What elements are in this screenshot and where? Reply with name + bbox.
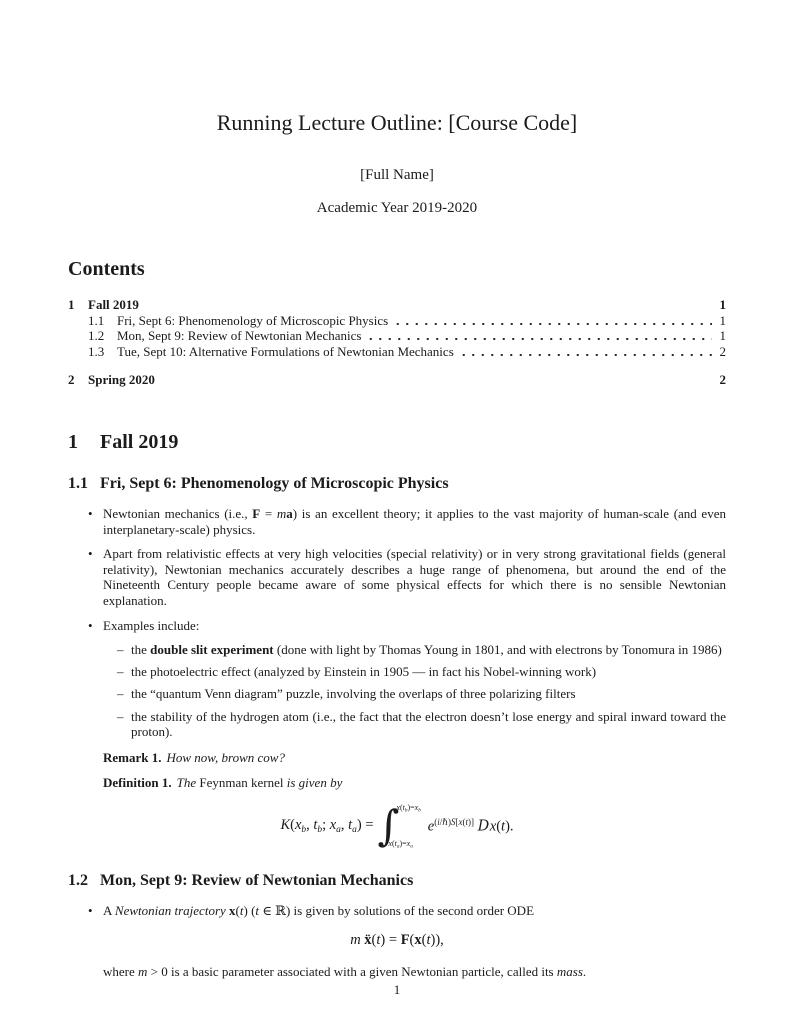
list-item: – the photoelectric effect (analyzed by … (68, 664, 726, 680)
toc-entry-sept-10[interactable]: 1.3 Tue, Sept 10: Alternative Formulatio… (68, 344, 726, 360)
toc-dot-leader (456, 344, 712, 360)
remark-label: Remark 1. (103, 750, 162, 765)
bullet-icon: • (88, 903, 103, 919)
toc-entry-number: 2 (68, 372, 88, 388)
bullet-item: • Apart from relativistic effects at ver… (68, 546, 726, 608)
toc-entry-label: Fri, Sept 6: Phenomenology of Microscopi… (117, 313, 388, 329)
bullet-item: • Examples include: (68, 618, 726, 634)
toc-entry-label: Spring 2020 (88, 372, 155, 388)
list-item-text: the double slit experiment (done with li… (131, 642, 726, 658)
list-item-text: the photoelectric effect (analyzed by Ei… (131, 664, 726, 680)
integral-lower-bound: x(ta)=xa (388, 840, 412, 850)
document-title: Running Lecture Outline: [Course Code] (68, 110, 726, 136)
table-of-contents: 1 Fall 2019 1 1.1 Fri, Sept 6: Phenomeno… (68, 297, 726, 388)
page-number: 1 (0, 982, 794, 998)
list-item: – the “quantum Venn diagram” puzzle, inv… (68, 686, 726, 702)
toc-entry-page: 2 (716, 344, 726, 360)
formula-rhs: e(i/ℏ)S[x(t)] Dx(t). (428, 817, 514, 836)
toc-entry-fall-2019[interactable]: 1 Fall 2019 1 (68, 297, 726, 313)
dash-icon: – (117, 664, 131, 680)
toc-entry-sept-9[interactable]: 1.2 Mon, Sept 9: Review of Newtonian Mec… (68, 328, 726, 344)
newton-ode-formula: m ẍ(t) = F(x(t)), (68, 932, 726, 949)
toc-entry-label: Tue, Sept 10: Alternative Formulations o… (117, 344, 454, 360)
toc-entry-page: 1 (716, 328, 726, 344)
list-item-text: the stability of the hydrogen atom (i.e.… (131, 709, 726, 740)
document-author: [Full Name] (68, 166, 726, 184)
document-date: Academic Year 2019-2020 (68, 199, 726, 217)
bullet-item: • A Newtonian trajectory x(t) (t ∈ ℝ) is… (68, 903, 726, 919)
section-number: 1 (68, 430, 100, 454)
formula-lhs: K(xb, tb; xa, ta) = (280, 817, 373, 836)
toc-entry-label: Mon, Sept 9: Review of Newtonian Mechani… (117, 328, 361, 344)
toc-entry-number: 1.2 (88, 328, 117, 344)
toc-spacer (141, 297, 712, 313)
definition-label: Definition 1. (103, 775, 172, 790)
toc-entry-page: 1 (716, 297, 726, 313)
section-title: Fall 2019 (100, 430, 178, 454)
bullet-text: Examples include: (103, 618, 726, 634)
contents-heading: Contents (68, 257, 726, 281)
integral-symbol: ∫ x(tb)=xb x(ta)=xa (378, 803, 424, 851)
bullet-icon: • (88, 506, 103, 537)
bullet-item: • Newtonian mechanics (i.e., F = ma) is … (68, 506, 726, 537)
remark-text: How now, brown cow? (167, 750, 285, 765)
bullet-text: Newtonian mechanics (i.e., F = ma) is an… (103, 506, 726, 537)
toc-entry-spring-2020[interactable]: 2 Spring 2020 2 (68, 372, 726, 388)
definition-block: Definition 1.The Feynman kernel is given… (68, 775, 726, 791)
toc-dot-leader (363, 328, 712, 344)
subsection-title: Mon, Sept 9: Review of Newtonian Mechani… (100, 871, 413, 890)
subsection-number: 1.2 (68, 871, 100, 890)
section-heading-fall-2019: 1 Fall 2019 (68, 430, 726, 454)
bullet-icon: • (88, 618, 103, 634)
toc-entry-number: 1 (68, 297, 88, 313)
definition-text: The Feynman kernel is given by (177, 775, 343, 790)
bullet-text: A Newtonian trajectory x(t) (t ∈ ℝ) is g… (103, 903, 726, 919)
toc-entry-page: 2 (716, 372, 726, 388)
toc-entry-page: 1 (716, 313, 726, 329)
bullet-text: Apart from relativistic effects at very … (103, 546, 726, 608)
list-item: – the double slit experiment (done with … (68, 642, 726, 658)
dash-icon: – (117, 686, 131, 702)
toc-entry-number: 1.1 (88, 313, 117, 329)
toc-dot-leader (390, 313, 712, 329)
toc-spacer (157, 372, 712, 388)
remark-block: Remark 1.How now, brown cow? (68, 750, 726, 766)
document-page: Running Lecture Outline: [Course Code] [… (0, 0, 794, 1028)
dash-icon: – (117, 642, 131, 658)
list-item-text: the “quantum Venn diagram” puzzle, invol… (131, 686, 726, 702)
toc-entry-number: 1.3 (88, 344, 117, 360)
integral-upper-bound: x(tb)=xb (396, 804, 420, 814)
subsection-number: 1.1 (68, 474, 100, 493)
subsection-heading-sept-6: 1.1 Fri, Sept 6: Phenomenology of Micros… (68, 474, 726, 493)
toc-entry-sept-6[interactable]: 1.1 Fri, Sept 6: Phenomenology of Micros… (68, 313, 726, 329)
toc-entry-label: Fall 2019 (88, 297, 139, 313)
feynman-kernel-formula: K(xb, tb; xa, ta) = ∫ x(tb)=xb x(ta)=xa … (68, 803, 726, 851)
dash-icon: – (117, 709, 131, 740)
subsection-title: Fri, Sept 6: Phenomenology of Microscopi… (100, 474, 449, 493)
list-item: – the stability of the hydrogen atom (i.… (68, 709, 726, 740)
paragraph: where m > 0 is a basic parameter associa… (68, 964, 726, 980)
integral-bounds: x(tb)=xb x(ta)=xa (399, 803, 423, 851)
subsection-heading-sept-9: 1.2 Mon, Sept 9: Review of Newtonian Mec… (68, 871, 726, 890)
bullet-icon: • (88, 546, 103, 608)
